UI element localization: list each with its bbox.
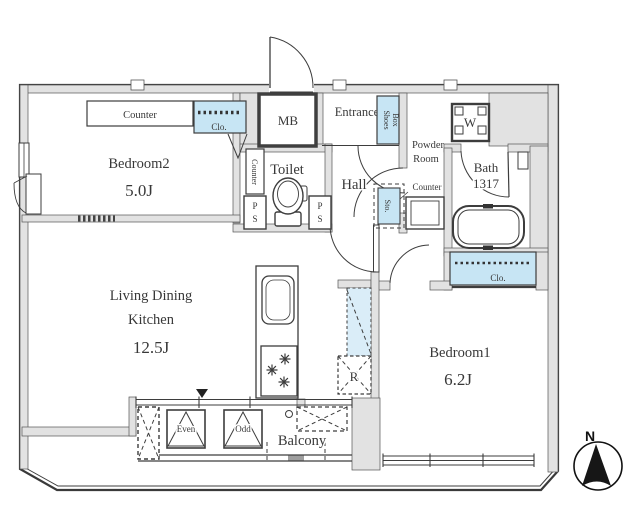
tub-handle-bottom	[483, 246, 493, 251]
wall-laundry-block	[489, 93, 548, 146]
powder-counter-label: Counter	[413, 182, 442, 192]
wall-bath-east	[530, 146, 548, 254]
stove-icon	[261, 346, 297, 396]
compass-north-label: N	[585, 428, 595, 444]
washer-label: W	[464, 115, 477, 130]
mb-label: MB	[278, 113, 299, 128]
ps-right-p: P	[317, 201, 322, 211]
refrigerator-label: R	[350, 369, 359, 384]
bedroom1-closet-label: Clo.	[490, 273, 505, 283]
shoes-box-label-2: Box	[391, 113, 400, 126]
balcony-label: Balcony	[278, 433, 327, 449]
ldk-label-2: Kitchen	[128, 312, 175, 328]
bedroom2-counter-label: Counter	[123, 110, 157, 121]
kitchen-sink-icon	[262, 276, 294, 324]
ldk-area: 12.5J	[133, 338, 170, 357]
bath-size: 1317	[473, 176, 500, 191]
bedroom2-label: Bedroom2	[108, 156, 169, 172]
wall-closet1-east	[536, 252, 548, 290]
bedroom1-area: 6.2J	[444, 370, 472, 389]
wall-tab	[131, 80, 144, 90]
hall-label: Hall	[342, 177, 367, 193]
bedroom2-closet-label: Clo.	[211, 122, 226, 132]
ac-even-label: Even	[177, 424, 196, 434]
bathtub-icon	[453, 204, 524, 250]
ps-right-s: S	[317, 214, 322, 224]
wall-bedroom1-north-right	[430, 281, 452, 290]
powder-label-1: Powder	[412, 140, 445, 151]
meter-box: MB	[259, 94, 316, 146]
shoes-box-label-1: Shoes	[382, 110, 391, 129]
wall-powder-west-upper	[399, 93, 407, 168]
ac-odd-label: Odd	[235, 424, 251, 434]
bedroom2-west-window	[19, 143, 29, 177]
drain-circle	[286, 411, 293, 418]
bath-shower-panel	[518, 152, 528, 169]
toilet-label: Toilet	[270, 162, 304, 178]
entrance-label: Entrance	[335, 105, 380, 119]
wall-ldk-south-left	[22, 427, 136, 436]
floor-plan: Counter Clo. Bedroom2 5.0J MB Entrance S…	[0, 0, 633, 518]
bedroom2-west-door	[14, 174, 41, 214]
compass-icon: N	[574, 428, 622, 490]
wall-tab	[333, 80, 346, 90]
ps-left-p: P	[252, 201, 257, 211]
wall-tab	[444, 80, 457, 90]
toilet-counter-label: Counter	[250, 159, 259, 185]
bedroom1-window	[383, 454, 534, 468]
east-wall	[548, 85, 558, 472]
kitchen-counter	[256, 266, 298, 398]
washer-icon: W	[452, 104, 489, 141]
storage-label: Sto.	[383, 200, 392, 213]
wall-bedroom1-west	[371, 272, 379, 401]
wall-bedroom2-south	[22, 215, 240, 222]
refrigerator-space: R	[338, 356, 371, 394]
powder-label-2: Room	[413, 154, 439, 165]
bath-label: Bath	[474, 160, 499, 175]
wall-shelf-stub	[338, 280, 371, 288]
wall-bath-west	[444, 148, 452, 256]
ac-unit-odd: Odd	[224, 410, 262, 448]
tub-handle-top	[483, 204, 493, 209]
wall-ldk-south-jog	[129, 397, 136, 436]
ps-left-s: S	[252, 214, 257, 224]
vanity-sink-icon	[406, 197, 444, 229]
ac-unit-even: Even	[167, 410, 205, 448]
bedroom1-label: Bedroom1	[429, 345, 490, 361]
wall-balcony-east-block	[352, 398, 380, 470]
open-shelf	[347, 288, 371, 356]
ldk-label-1: Living Dining	[110, 288, 193, 304]
bedroom2-area: 5.0J	[125, 181, 153, 200]
